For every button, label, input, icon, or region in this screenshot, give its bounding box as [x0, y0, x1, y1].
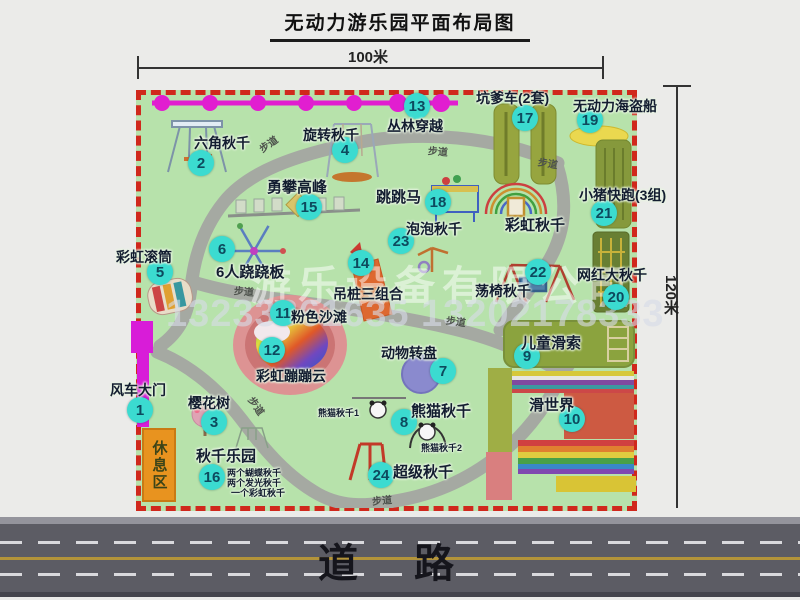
top-dimension-tick-right [602, 56, 604, 79]
rest-area-label: 休息区 [149, 440, 170, 491]
extra-label-6: 一个彩虹秋千 [231, 486, 285, 499]
walkway-label-2: 步道 [427, 142, 448, 159]
extra-label-2: 熊猫秋千1 [318, 406, 359, 419]
attraction-label-1: 风车大门 [110, 380, 166, 400]
walkway-label-3: 步道 [537, 153, 559, 171]
marker-6: 6 [209, 236, 235, 262]
marker-18: 18 [425, 189, 451, 215]
attraction-label-18: 跳跳马 [376, 186, 421, 207]
attraction-label-2: 六角秋千 [194, 133, 250, 153]
marker-14: 14 [348, 250, 374, 276]
attraction-label-7: 动物转盘 [381, 343, 437, 363]
attraction-label-15: 勇攀高峰 [267, 176, 327, 197]
rest-area: 休息区 [142, 428, 176, 502]
attraction-label-5: 彩虹滚筒 [116, 247, 172, 267]
attraction-label-3: 樱花树 [188, 393, 230, 413]
attraction-label-24: 超级秋千 [393, 461, 453, 482]
marker-2: 2 [188, 150, 214, 176]
attraction-label-19: 无动力海盗船 [573, 96, 657, 116]
top-dimension-line [138, 67, 604, 69]
attraction-label-14: 吊桩三组合 [333, 284, 403, 304]
attraction-label-11: 粉色沙滩 [291, 307, 347, 327]
page-title: 无动力游乐园平面布局图 [0, 8, 800, 42]
attraction-label-6: 6人跷跷板 [216, 261, 284, 282]
plan-title-text: 无动力游乐园平面布局图 [270, 8, 529, 42]
marker-12: 12 [259, 337, 285, 363]
road-label: 道路 [318, 531, 510, 589]
road-edge-top [0, 517, 800, 524]
walkway-label-4: 步道 [233, 282, 254, 299]
attraction-label-17: 坑爹车(2套) [476, 88, 549, 108]
attraction-label-9: 儿童滑索 [521, 332, 581, 353]
walkway-label-7: 步道 [371, 491, 392, 508]
attraction-label-23: 泡泡秋千 [406, 219, 462, 239]
marker-1: 1 [127, 397, 153, 423]
park-layout-plan: 无动力游乐园平面布局图 100米 120米 [0, 0, 800, 600]
width-dimension-label: 100米 [348, 46, 388, 67]
right-dimension-tick-top [663, 85, 691, 87]
marker-17: 17 [512, 105, 538, 131]
attraction-label-21: 小猪快跑(3组) [579, 185, 666, 205]
marker-20: 20 [603, 284, 629, 310]
attraction-label-12: 彩虹蹦蹦云 [256, 366, 326, 386]
attraction-label-4: 旋转秋千 [303, 125, 359, 145]
road-edge-bottom [0, 592, 800, 597]
attraction-label-16: 秋千乐园 [196, 445, 256, 466]
height-dimension-label: 120米 [660, 275, 681, 315]
walkway-label-5: 步道 [445, 312, 467, 330]
marker-15: 15 [296, 194, 322, 220]
attraction-label-8: 熊猫秋千 [411, 400, 471, 421]
top-dimension-tick-left [137, 56, 139, 79]
attraction-label-22: 荡椅秋千 [475, 281, 531, 301]
attraction-label-20: 网红大秋千 [577, 265, 647, 285]
marker-24: 24 [368, 462, 394, 488]
extra-label-3: 熊猫秋千2 [421, 441, 462, 454]
attraction-label-10: 滑世界 [529, 394, 574, 415]
road: 道路 [0, 517, 800, 597]
extra-label-1: 彩虹秋千 [505, 214, 565, 235]
marker-16: 16 [199, 464, 225, 490]
attraction-label-13: 丛林穿越 [387, 116, 443, 136]
